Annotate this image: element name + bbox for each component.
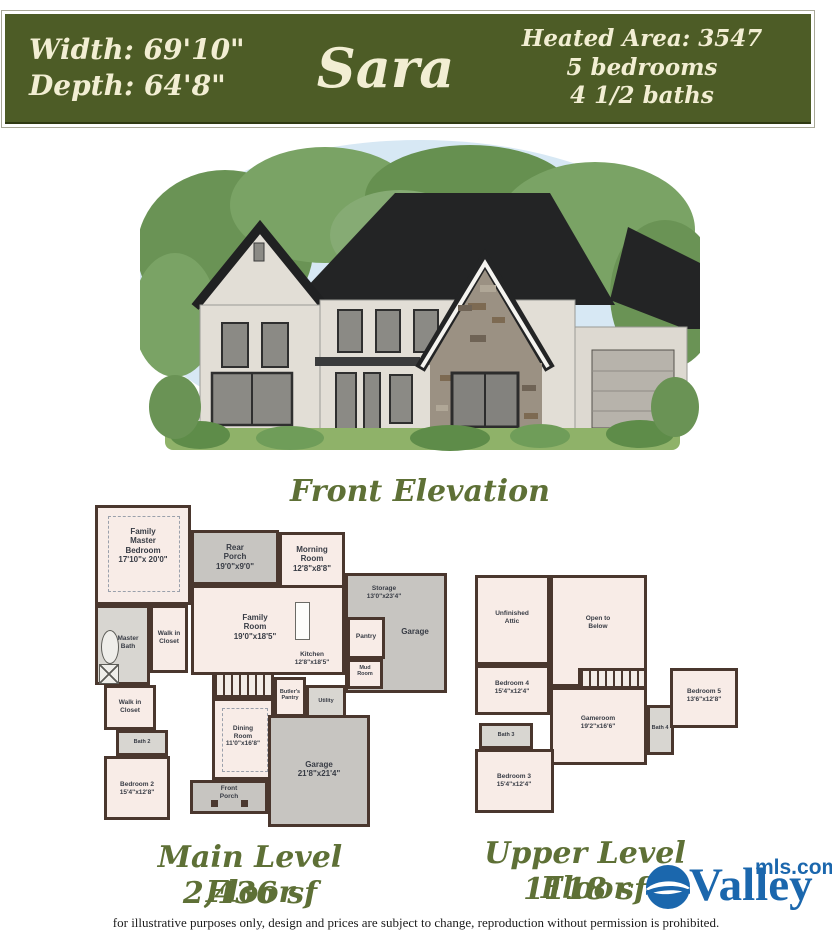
room-bedroom-3 (475, 749, 554, 813)
room-family-master-bedroom (95, 505, 191, 605)
room-bath-2 (116, 730, 168, 756)
heated-area-label: Heated Area: 3547 (507, 25, 777, 54)
room-master-bath (95, 605, 150, 685)
upper-level-plan: Unfinished Attic Open to Below Bedroom 4… (465, 575, 740, 815)
width-label: Width: 69'10" (29, 32, 264, 68)
room-walk-in-closet-b (104, 685, 156, 730)
room-morning-room (279, 532, 345, 588)
bathtub (101, 630, 119, 664)
room-rear-porch (191, 530, 279, 585)
kitchen-island (295, 602, 310, 640)
dining-ceiling-outline (222, 708, 268, 772)
room-family-kitchen (191, 585, 345, 675)
stairs-main (212, 672, 274, 698)
room-bedroom-4 (475, 665, 550, 715)
room-walk-in-closet-a (150, 605, 188, 673)
depth-label: Depth: 64'8" (29, 68, 264, 104)
plan-name-block: Sara (264, 36, 507, 100)
tray-ceiling-outline (108, 516, 180, 592)
room-garage-main (268, 715, 370, 827)
room-utility (306, 685, 346, 719)
valleymls-logo: Valley mls.com (645, 856, 832, 920)
shower (99, 664, 119, 684)
stairs-upper (578, 668, 647, 689)
specs-block: Heated Area: 3547 5 bedrooms 4 1/2 baths (507, 25, 811, 111)
room-butlers-pantry (274, 677, 306, 717)
room-bath-3 (479, 723, 533, 749)
front-elevation-caption: Front Elevation (270, 474, 570, 509)
logo-mls-text: mls.com (755, 856, 832, 880)
room-dining (212, 698, 274, 780)
flyer-page: Width: 69'10" Depth: 64'8" Sara Heated A… (0, 0, 832, 934)
porch-post (211, 800, 218, 807)
valleymls-globe-icon (645, 864, 691, 910)
main-level-area: 2,436 sf (110, 876, 390, 911)
room-gameroom (550, 687, 647, 765)
room-mud-room (347, 659, 383, 689)
room-front-porch (190, 780, 268, 814)
dimensions-block: Width: 69'10" Depth: 64'8" (5, 32, 264, 105)
main-level-plan: Family Master Bedroom 17'10"x 20'0" Rear… (90, 505, 462, 835)
plan-name: Sara (264, 36, 507, 100)
bedrooms-label: 5 bedrooms (507, 54, 777, 83)
room-unfinished-attic (475, 575, 550, 665)
porch-post (241, 800, 248, 807)
plan-info-banner: Width: 69'10" Depth: 64'8" Sara Heated A… (5, 14, 811, 124)
front-elevation-illustration (140, 135, 700, 480)
room-bedroom-5 (670, 668, 738, 728)
disclaimer-text: for illustrative purposes only, design a… (0, 915, 832, 931)
entry-doors (336, 373, 412, 429)
room-bedroom-2 (104, 756, 170, 820)
room-pantry (347, 617, 385, 659)
attic-vent (254, 243, 264, 261)
baths-label: 4 1/2 baths (507, 82, 777, 111)
porch-roof (315, 357, 420, 366)
